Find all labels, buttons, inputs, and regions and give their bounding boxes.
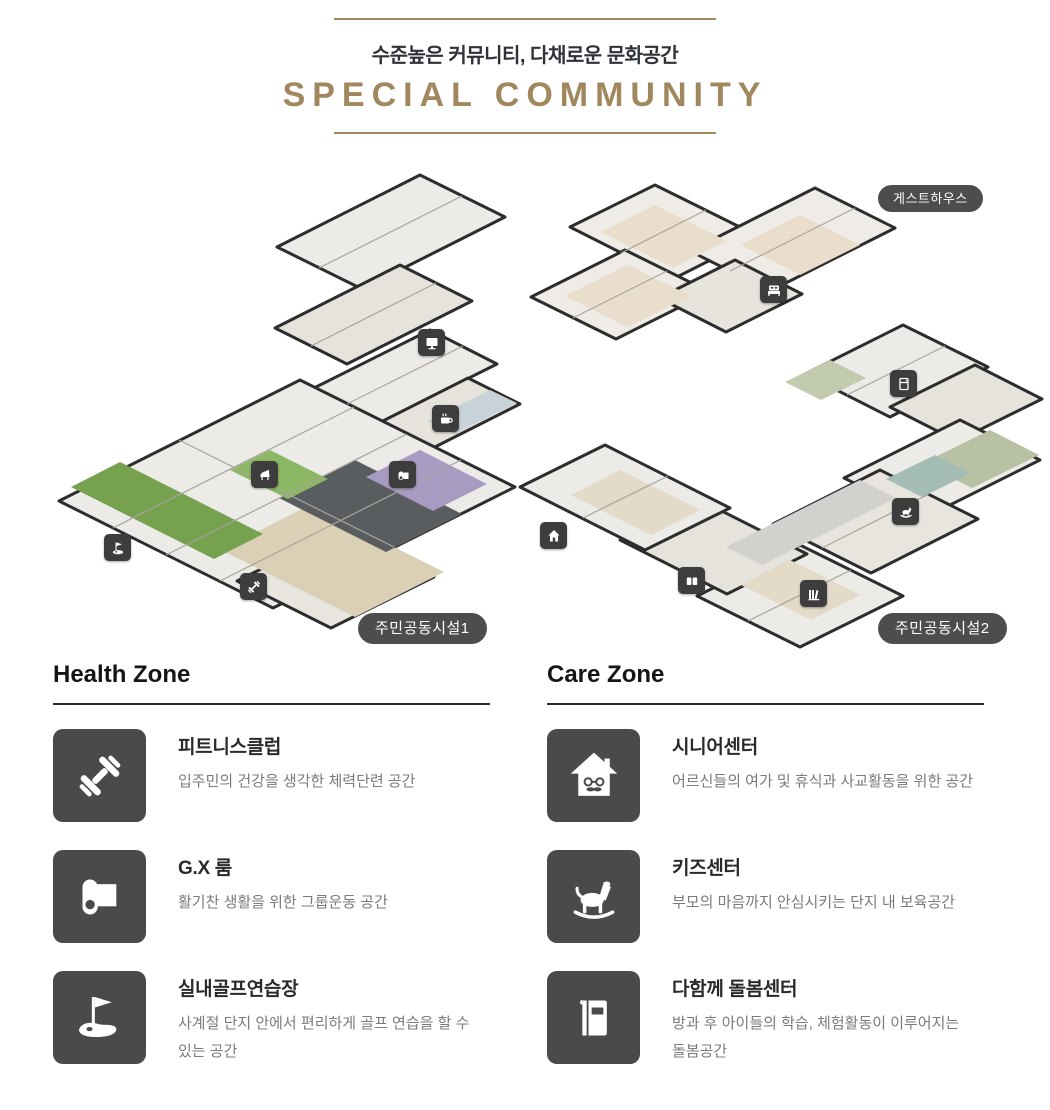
senior-house-icon: [547, 729, 640, 822]
isometric-floor-plans: [0, 0, 1050, 660]
special-community-page: 수준높은 커뮤니티, 다채로운 문화공간 SPECIAL COMMUNITY: [0, 0, 1050, 1110]
care-zone: Care Zone 시니어센터 어르신들의 여가 및 휴식과 사교활동을 위한 …: [547, 661, 984, 1094]
health-zone-title: Health Zone: [53, 661, 490, 705]
care-zone-title: Care Zone: [547, 661, 984, 705]
zones-section: Health Zone 피트니스클럽 입주민의 건강을 생각한 체력단련 공간 …: [53, 661, 997, 1094]
list-item-senior-center: 시니어센터 어르신들의 여가 및 휴식과 사교활동을 위한 공간: [547, 729, 984, 822]
guesthouse-label: 게스트하우스: [878, 185, 983, 212]
list-item-care-center: 다함께 돌봄센터 방과 후 아이들의 학습, 체험활동이 이루어지는 돌봄공간: [547, 971, 984, 1066]
fridge-icon: [890, 370, 917, 397]
item-desc: 어르신들의 여가 및 휴식과 사교활동을 위한 공간: [672, 768, 973, 796]
list-item-gx-room: G.X 룸 활기찬 생활을 위한 그룹운동 공간: [53, 850, 490, 943]
golf-flag-icon: [104, 534, 131, 561]
plan1-label: 주민공동시설1: [358, 613, 487, 644]
item-title: G.X 룸: [178, 853, 388, 880]
bookshelf-icon: [800, 580, 827, 607]
guesthouse-building: [531, 185, 895, 339]
golf-icon: [53, 971, 146, 1064]
item-title: 피트니스클럽: [178, 732, 415, 759]
health-zone: Health Zone 피트니스클럽 입주민의 건강을 생각한 체력단련 공간 …: [53, 661, 490, 1094]
rocking-horse-icon: [547, 850, 640, 943]
floor-plan-area: 게스트하우스 주민공동시설1 주민공동시설2: [0, 0, 1050, 660]
item-desc: 활기찬 생활을 위한 그룹운동 공간: [178, 889, 388, 917]
item-title: 키즈센터: [672, 853, 955, 880]
monitor-icon: [418, 329, 445, 356]
item-title: 실내골프연습장: [178, 974, 490, 1001]
item-title: 시니어센터: [672, 732, 973, 759]
yoga-mat-icon: [389, 461, 416, 488]
book-icon: [547, 971, 640, 1064]
plan2-label: 주민공동시설2: [878, 613, 1007, 644]
piano-icon: [251, 461, 278, 488]
open-book-icon: [678, 567, 705, 594]
list-item-fitness: 피트니스클럽 입주민의 건강을 생각한 체력단련 공간: [53, 729, 490, 822]
item-desc: 사계절 단지 안에서 편리하게 골프 연습을 할 수 있는 공간: [178, 1010, 490, 1066]
item-title: 다함께 돌봄센터: [672, 974, 984, 1001]
list-item-kids-center: 키즈센터 부모의 마음까지 안심시키는 단지 내 보육공간: [547, 850, 984, 943]
house-icon: [540, 522, 567, 549]
yoga-mat-icon: [53, 850, 146, 943]
rocking-horse-icon: [892, 498, 919, 525]
dumbbell-icon: [240, 573, 267, 600]
coffee-icon: [432, 405, 459, 432]
bed-icon: [760, 276, 787, 303]
item-desc: 방과 후 아이들의 학습, 체험활동이 이루어지는 돌봄공간: [672, 1010, 984, 1066]
list-item-golf: 실내골프연습장 사계절 단지 안에서 편리하게 골프 연습을 할 수 있는 공간: [53, 971, 490, 1066]
dumbbell-icon: [53, 729, 146, 822]
item-desc: 부모의 마음까지 안심시키는 단지 내 보육공간: [672, 889, 955, 917]
item-desc: 입주민의 건강을 생각한 체력단련 공간: [178, 768, 415, 796]
